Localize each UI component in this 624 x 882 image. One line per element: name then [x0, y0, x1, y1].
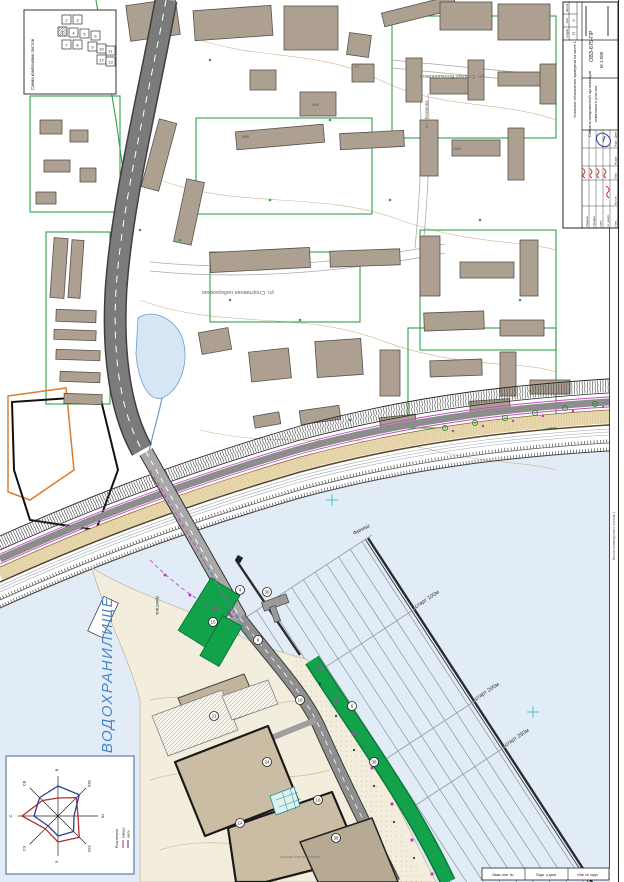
role-prover: Провер.	[592, 215, 596, 226]
drawing-scale: М 1:500	[599, 51, 604, 68]
boundary-note: граница благоустройства	[280, 855, 320, 859]
building	[468, 60, 484, 100]
wind-rose-title: Роза ветров	[115, 829, 119, 848]
building	[315, 338, 363, 377]
rl-ndok: № док.	[614, 156, 618, 165]
sheets-label: Листов	[565, 3, 569, 12]
callout-number: 18	[297, 698, 303, 703]
footer-cell-2: Подп. и дата	[536, 873, 556, 877]
building-storey-label: 5КЖ	[242, 135, 250, 139]
scheme-sheet-number: 12	[99, 57, 104, 62]
wind-direction-label: ЮЗ	[87, 845, 92, 852]
building	[500, 320, 544, 336]
sheet-scheme-box: Схема компоновки листов 2314567891011121…	[24, 10, 116, 94]
building	[40, 120, 62, 134]
sheet-label: Лист	[565, 17, 569, 23]
wind-direction-label: ЮВ	[87, 780, 92, 787]
building	[210, 247, 311, 272]
building-storey-label: ТП	[354, 65, 359, 69]
building	[498, 4, 550, 40]
building	[250, 70, 276, 90]
building	[424, 311, 485, 331]
building	[36, 192, 56, 204]
building	[430, 359, 483, 377]
building	[340, 130, 405, 149]
drawing-title-2: земельного участка	[593, 85, 598, 122]
wind-direction-label: С	[8, 814, 13, 817]
role-nkontr: Н. контр.	[606, 214, 610, 227]
rl-podp: Подп.	[614, 139, 618, 147]
callout-number: 38	[333, 836, 339, 841]
rl-data: Дата	[614, 131, 618, 138]
wind-direction-label: В	[54, 768, 59, 771]
building	[430, 78, 472, 94]
building	[68, 240, 84, 299]
wind-direction-label: Ю	[100, 814, 105, 818]
building	[284, 6, 338, 50]
building	[80, 168, 96, 182]
building	[70, 130, 88, 142]
building	[460, 262, 514, 278]
scheme-sheet-number: 13	[108, 59, 113, 64]
street-casings	[150, 60, 556, 275]
pier-label: пристань	[155, 596, 160, 616]
site-plan-drawing: старт 100мстарт 200мстарт 250м 5КЖ9КЖ5КЖ…	[0, 0, 624, 882]
building	[498, 72, 542, 86]
building	[60, 371, 100, 382]
building	[520, 240, 538, 296]
building	[440, 2, 492, 30]
rl-koluch: Кол.уч.	[614, 196, 618, 205]
callout-number: 30	[264, 590, 270, 595]
building	[420, 236, 440, 296]
drawing-title-1: Схема планировочной организации	[587, 71, 592, 137]
building-storey-label: 9КЖ	[454, 147, 462, 151]
wind-direction-label: СЗ	[21, 845, 26, 851]
stage-value: П	[571, 32, 576, 35]
org-name-blob	[585, 6, 587, 36]
building	[50, 238, 68, 299]
building	[406, 58, 422, 102]
map-sheet: старт 100мстарт 200мстарт 250м 5КЖ9КЖ5КЖ…	[0, 0, 624, 882]
match-line-label: Линия совмещения с листом 1	[612, 512, 616, 560]
wind-direction-label: СВ	[21, 780, 26, 786]
building	[198, 328, 231, 355]
rl-list: Лист	[614, 172, 618, 179]
black-parcel	[12, 396, 118, 530]
stage-label: Стадия	[565, 28, 569, 37]
building	[44, 160, 70, 172]
wind-rose-legend-item: июль	[126, 830, 130, 838]
role-razrab: Разраб.	[585, 216, 589, 227]
building	[193, 5, 273, 40]
title-block: Условные обозначения приведены на листе …	[563, 2, 618, 228]
street-label-sportivnaya: ул. Спортивная набережная	[202, 289, 274, 295]
sheet-scheme-title: Схема компоновки листов	[30, 38, 35, 90]
callout-number: 21	[211, 714, 217, 719]
building	[508, 128, 524, 180]
building	[249, 348, 292, 382]
building	[54, 329, 96, 340]
street-label-bolshevikov: ул. Старых Большевиков	[420, 73, 484, 79]
building	[253, 412, 281, 428]
building	[174, 179, 205, 245]
footer-cell-3: Инв. № подл.	[577, 873, 598, 877]
building	[330, 249, 401, 267]
title-block-note: Условные обозначения приведены на листе …	[573, 41, 577, 118]
building	[540, 64, 556, 104]
role-gip: ГИП	[599, 221, 603, 227]
building	[420, 120, 438, 176]
stream-pond	[136, 314, 185, 398]
callout-number: 16	[315, 798, 321, 803]
building	[56, 309, 96, 322]
building	[56, 349, 100, 361]
scheme-sheet-number: 10	[99, 46, 104, 51]
building	[347, 33, 372, 58]
wind-rose-box: ССВВЮВЮЮЗЗСЗРоза ветровянварьиюль	[6, 756, 134, 874]
building	[500, 352, 516, 396]
building	[64, 393, 102, 404]
footer-cell-1: Взам. инв. №	[492, 873, 513, 877]
building-storey-label: 5КЖ	[312, 103, 320, 107]
rl-izm: Изм.	[614, 220, 618, 226]
callout-number: 36	[371, 760, 377, 765]
building	[380, 350, 400, 396]
wind-rose-legend-item: январь	[121, 827, 125, 838]
street-label-lizyukova: ул. Лизюкова	[424, 100, 429, 128]
org-name-blob2	[607, 6, 609, 36]
footer-cells: Взам. инв. № Подп. и дата Инв. № подл.	[482, 868, 609, 880]
callout-number: 24	[264, 760, 270, 765]
doc-code: ОВЗ-675-ПР	[589, 30, 595, 62]
callout-number: 15	[210, 620, 216, 625]
callout-number: 14	[237, 821, 243, 826]
